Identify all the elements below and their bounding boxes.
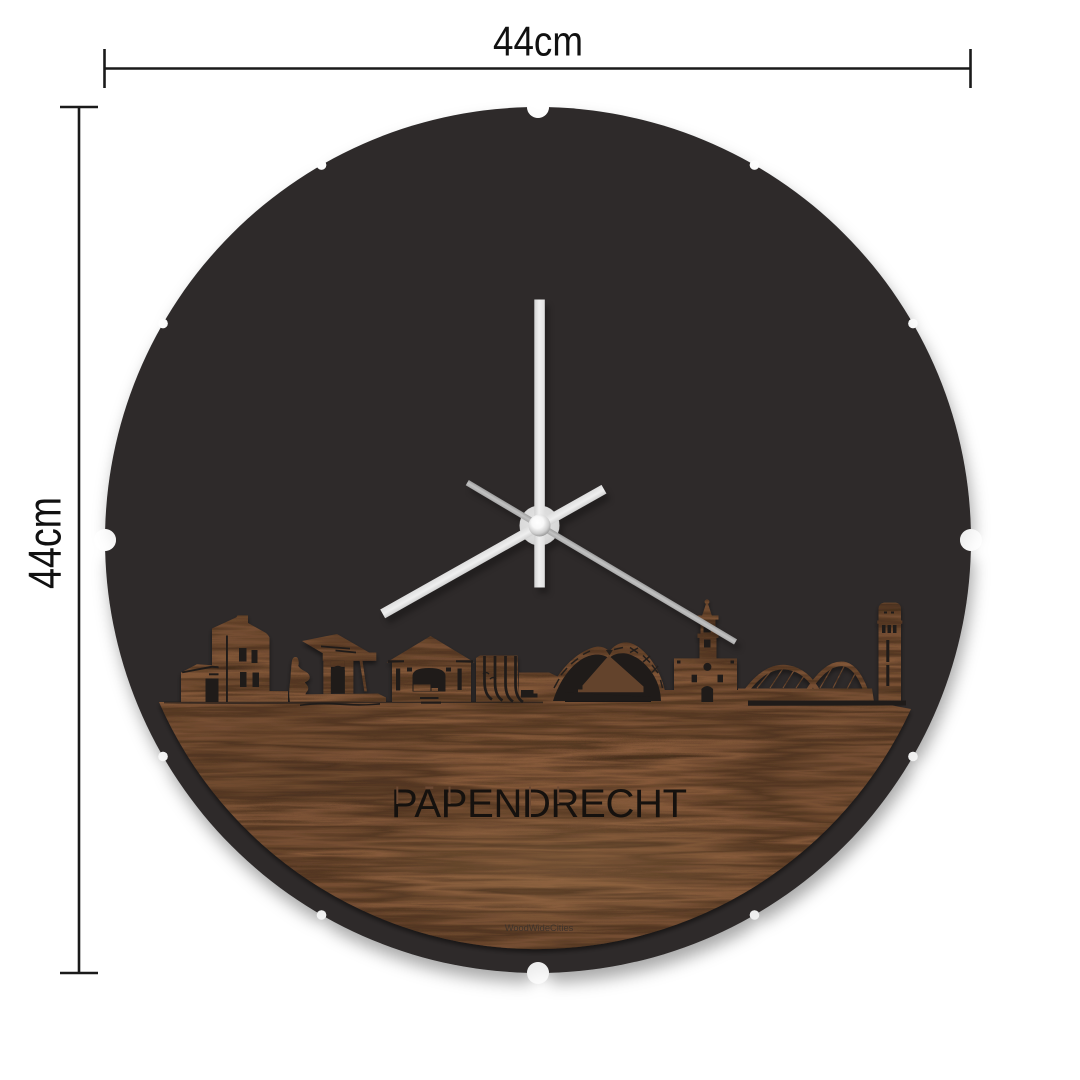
svg-text:44cm: 44cm [19,497,71,589]
svg-text:WoodWideCities: WoodWideCities [505,923,574,933]
svg-text:PAPENDRECHT: PAPENDRECHT [391,782,687,826]
svg-text:44cm: 44cm [493,18,583,65]
